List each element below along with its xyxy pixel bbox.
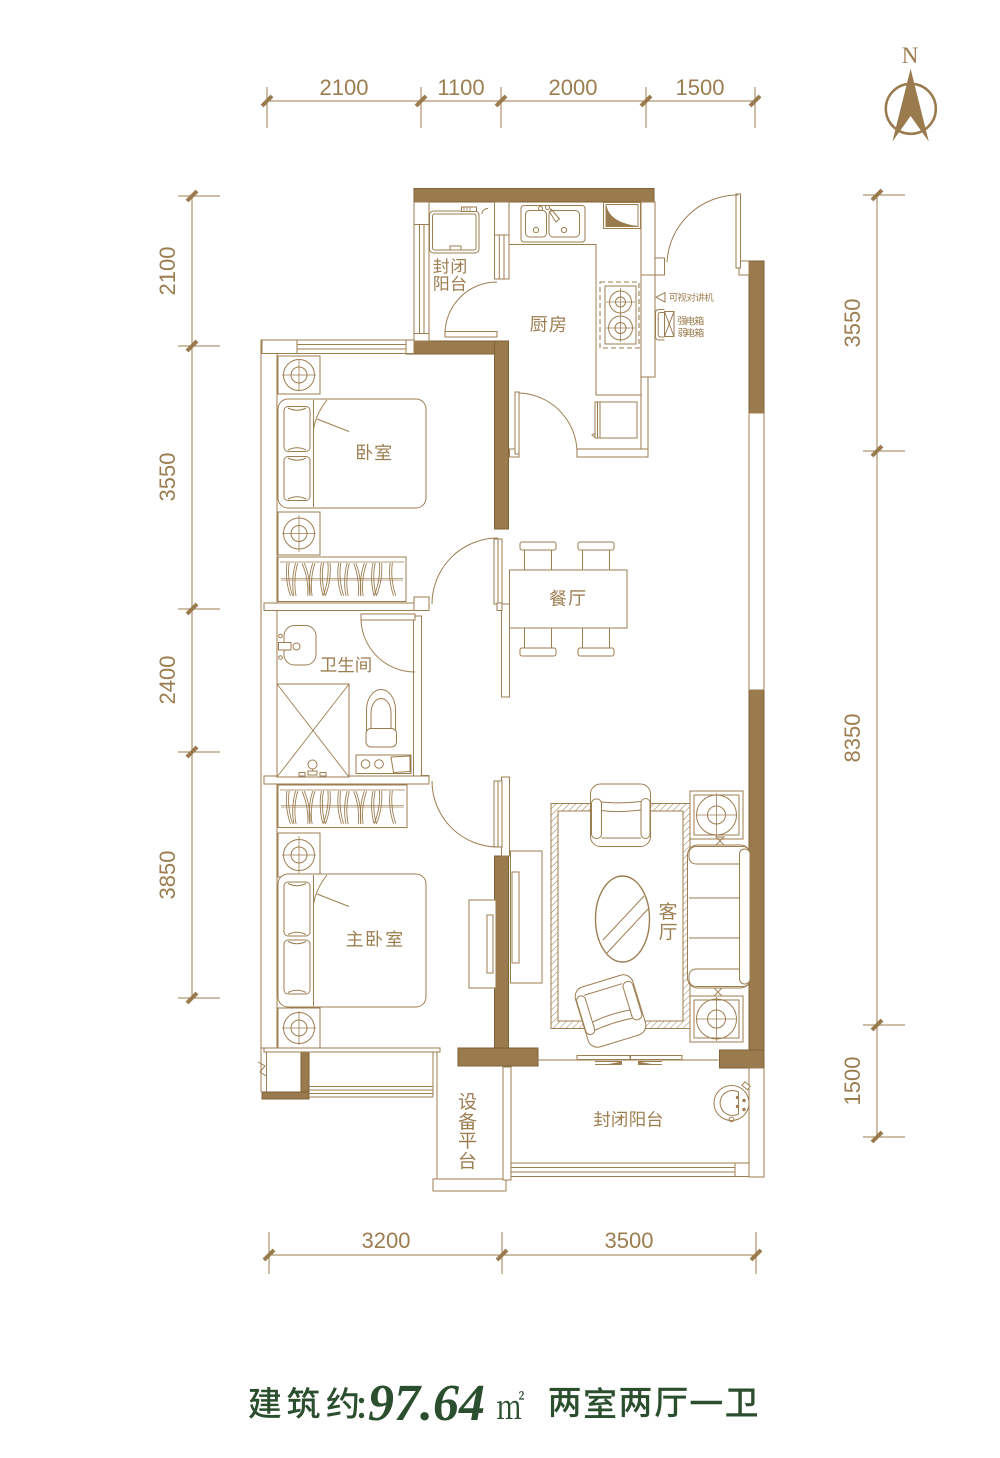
svg-text:2100: 2100 [320,75,369,100]
svg-text:3550: 3550 [155,453,180,502]
svg-text:3850: 3850 [155,851,180,900]
svg-text:N: N [902,43,919,68]
svg-text:1100: 1100 [437,75,484,100]
svg-text:3550: 3550 [840,299,865,348]
svg-text:2400: 2400 [155,656,180,705]
svg-text:2000: 2000 [549,75,598,100]
svg-text:1500: 1500 [840,1057,865,1106]
svg-text:3500: 3500 [605,1228,654,1253]
svg-text:2100: 2100 [155,247,180,296]
svg-text:3200: 3200 [362,1228,411,1253]
svg-text:8350: 8350 [840,714,865,763]
svg-text:1500: 1500 [676,75,725,100]
svg-text:97.64: 97.64 [368,1375,485,1432]
